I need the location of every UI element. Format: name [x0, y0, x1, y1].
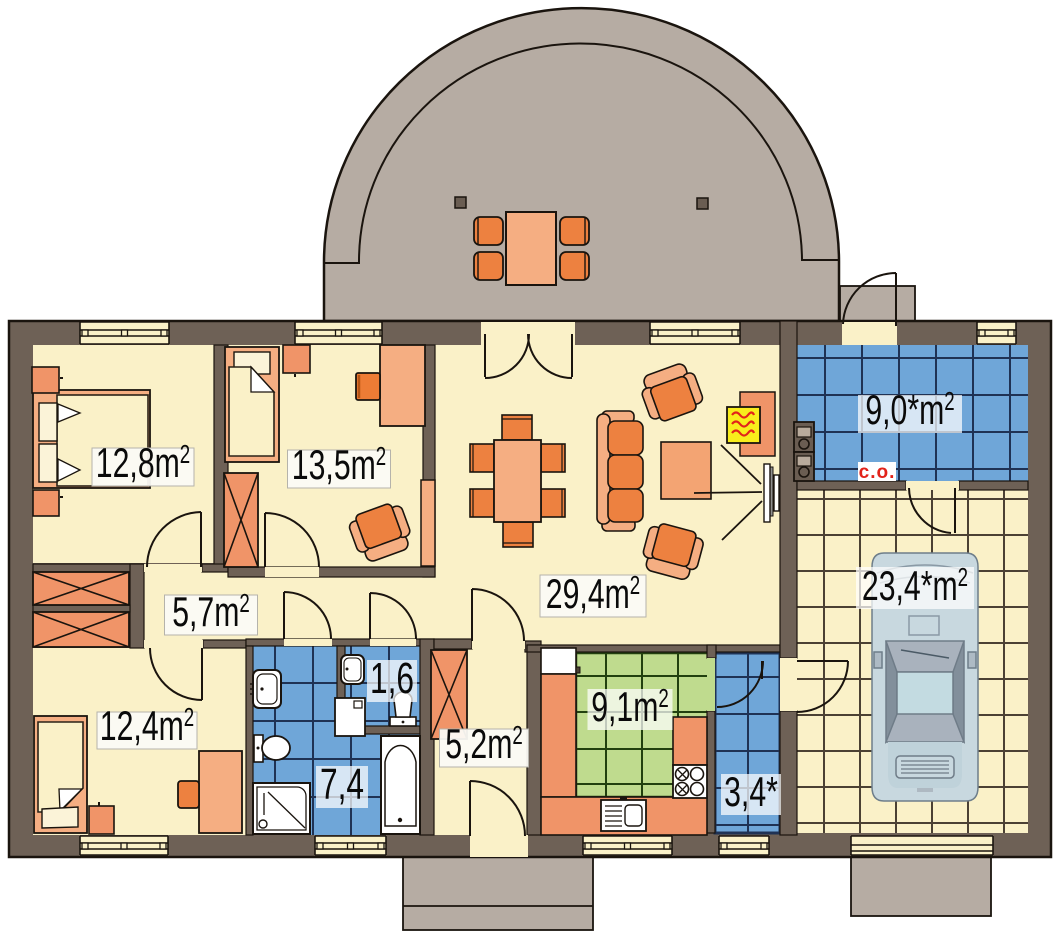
svg-text:29,4m2: 29,4m2	[546, 570, 640, 617]
svg-text:23,4*m2: 23,4*m2	[862, 562, 968, 609]
svg-text:7,4: 7,4	[320, 760, 364, 809]
svg-text:12,8m2: 12,8m2	[96, 439, 190, 486]
svg-text:12,4m2: 12,4m2	[100, 702, 194, 749]
svg-text:5,7m2: 5,7m2	[172, 588, 250, 635]
svg-text:9,1m2: 9,1m2	[591, 683, 669, 730]
svg-text:9,0*m2: 9,0*m2	[865, 386, 954, 433]
svg-text:c.o.: c.o.	[859, 462, 896, 483]
svg-text:13,5m2: 13,5m2	[292, 441, 386, 488]
svg-text:3,4*: 3,4*	[724, 768, 778, 815]
svg-text:5,2m2: 5,2m2	[445, 720, 523, 767]
svg-text:1,6: 1,6	[370, 654, 414, 703]
